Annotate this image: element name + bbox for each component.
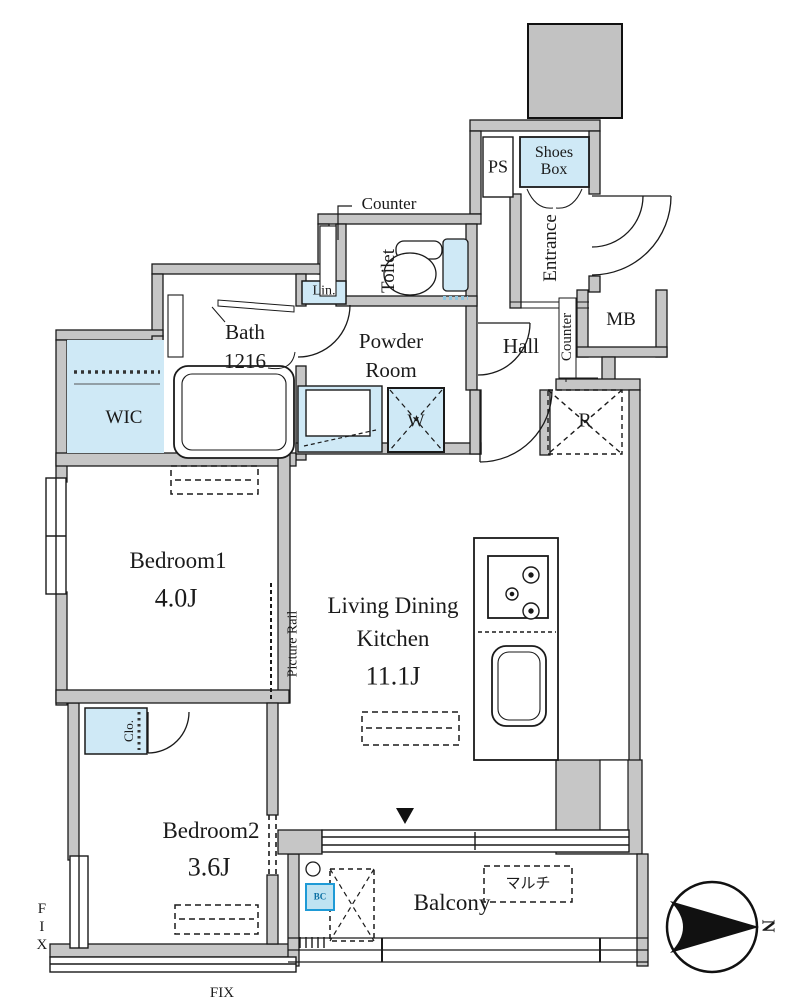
bedroom1-label: Bedroom1 — [129, 549, 226, 573]
ldk-size-label: 11.1J — [366, 662, 421, 689]
neighbor-block — [528, 24, 622, 118]
fridge-label: R — [578, 411, 591, 432]
counter-top-label: Counter — [362, 195, 417, 213]
bedroom2-label: Bedroom2 — [162, 819, 259, 843]
washer-label: W — [408, 412, 425, 431]
fix-left-label: FIX — [33, 901, 49, 955]
closet-label: Clo. — [122, 720, 136, 742]
picture-rail-label: Picture Rail — [287, 611, 302, 678]
bedroom2-size-label: 3.6J — [188, 853, 231, 880]
powder-room-door — [298, 305, 350, 357]
kitchen-counter — [474, 538, 558, 760]
shoes-box-label: Shoes Box — [525, 145, 583, 179]
partition-dashed — [269, 815, 276, 875]
entry-marker-triangle — [396, 808, 414, 824]
ldk-label-1: Living Dining — [328, 594, 459, 618]
floor-plan-drawing — [0, 0, 800, 1008]
toilet-label: Toilet — [379, 249, 399, 293]
compass — [667, 882, 759, 972]
balcony-light — [306, 862, 320, 876]
wall-notch — [600, 760, 628, 830]
bc-label: BC — [314, 892, 327, 901]
bedroom2-door — [148, 712, 189, 753]
mb-label: MB — [606, 310, 636, 330]
north-label: N — [759, 920, 778, 933]
fix-bottom-label: FIX — [210, 986, 234, 1002]
bath-size-label: 1216 — [224, 350, 266, 372]
wic-label: WIC — [106, 408, 143, 428]
hall-label: Hall — [503, 335, 539, 357]
powder-room-label-2: Room — [365, 359, 416, 381]
entrance-label: Entrance — [541, 214, 561, 282]
bath-label: Bath — [225, 321, 265, 343]
linen-label: Lin. — [313, 285, 336, 300]
floor-plan: Counter PS Shoes Box Entrance MB Toilet … — [0, 0, 800, 1008]
drain — [300, 937, 324, 948]
counter-side-label: Counter — [560, 313, 576, 361]
bedroom1-size-label: 4.0J — [155, 584, 198, 611]
entrance-door — [592, 196, 671, 275]
washbasin — [298, 386, 382, 452]
north-arrow — [670, 901, 759, 953]
ps-label: PS — [488, 158, 508, 177]
powder-room-label-1: Powder — [359, 330, 423, 352]
ldk-label-2: Kitchen — [357, 627, 430, 651]
wic-area — [67, 340, 164, 453]
multi-label: マルチ — [505, 876, 550, 892]
balcony-label: Balcony — [414, 891, 491, 915]
